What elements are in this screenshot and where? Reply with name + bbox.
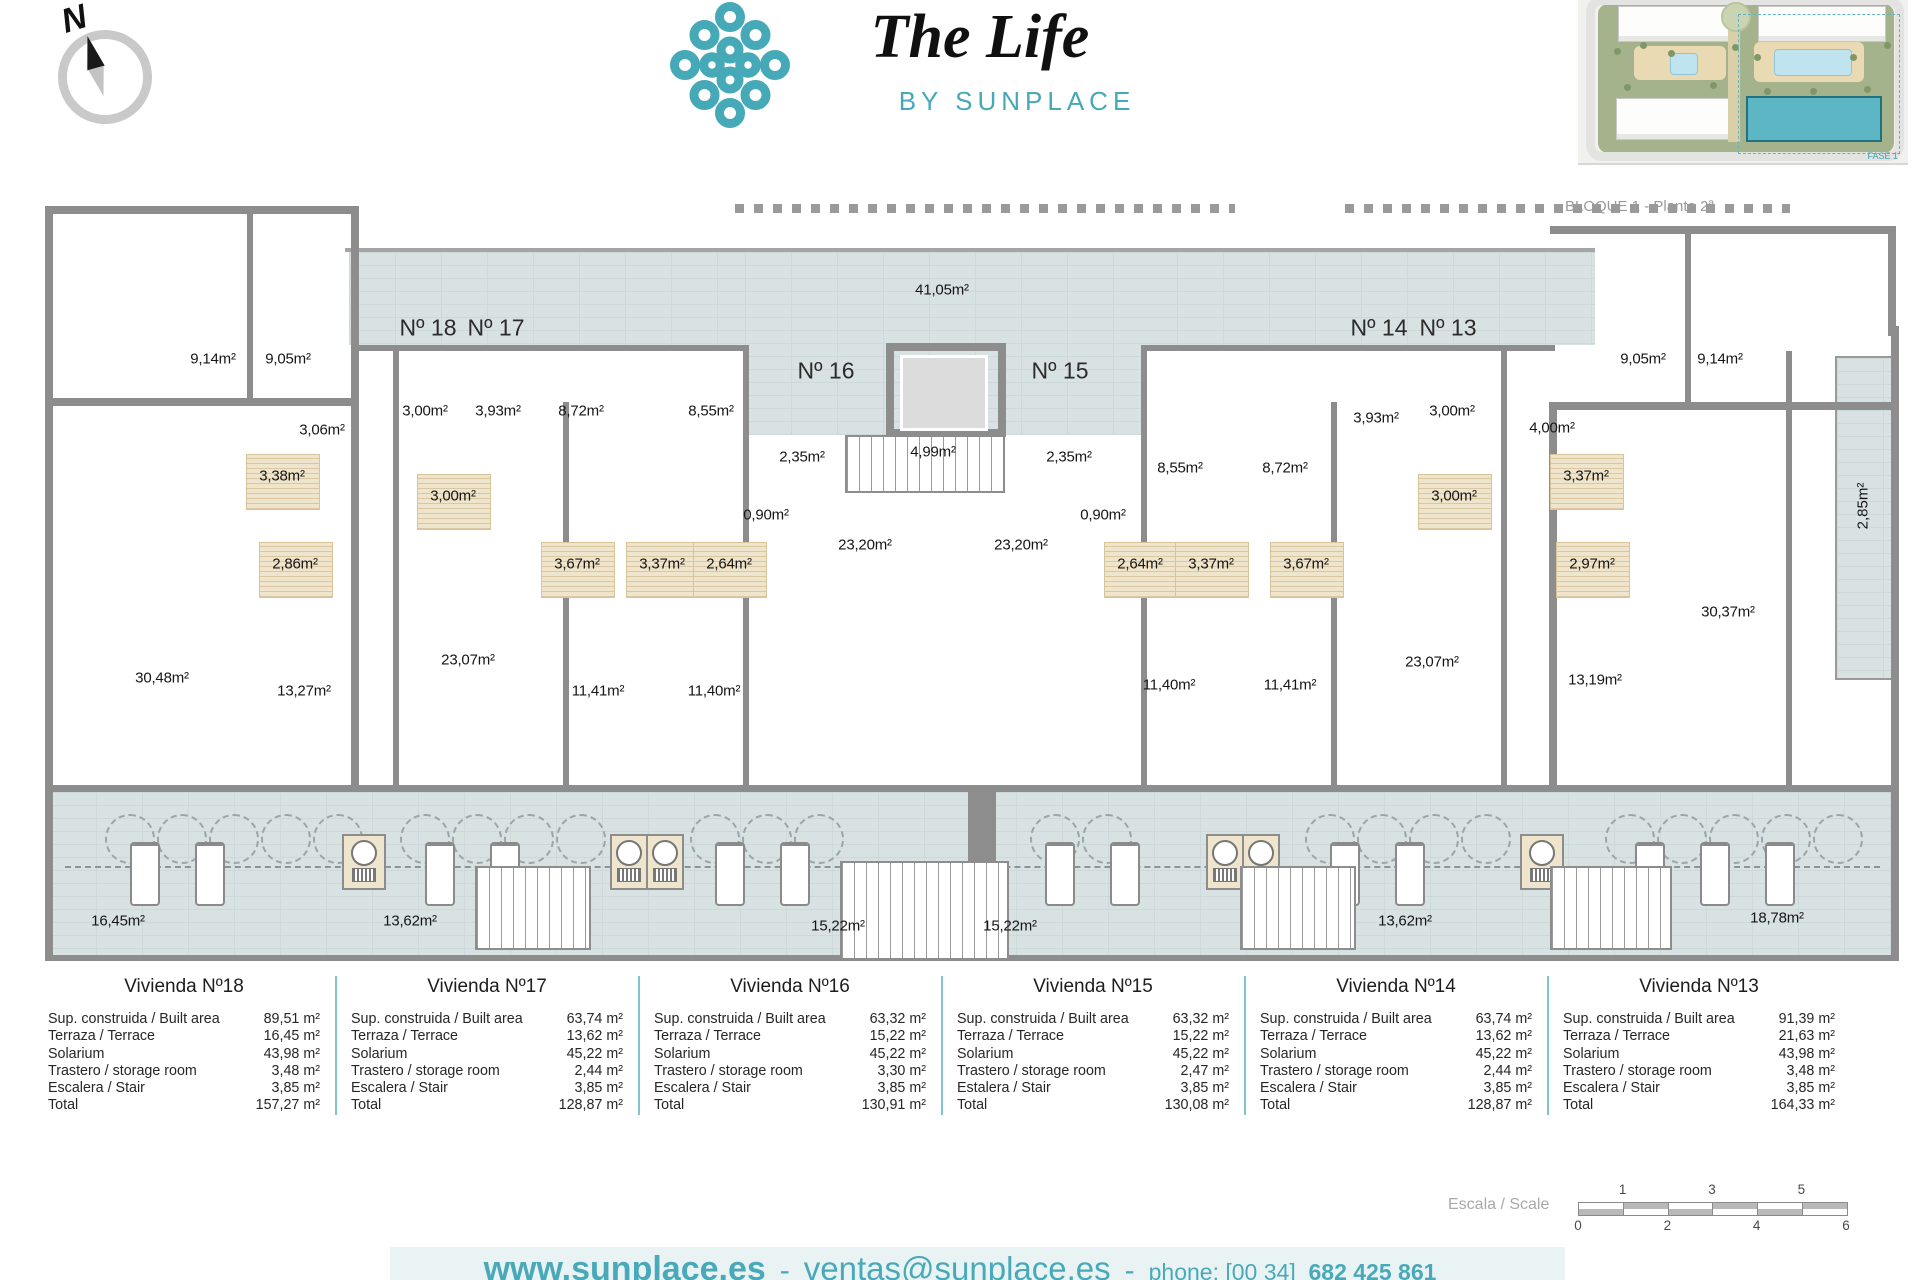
vivienda-table-title: Vivienda Nº15 <box>957 976 1229 998</box>
table-row: Sup. construida / Built area63,32 m² <box>957 1011 1229 1028</box>
table-row-value: 157,27 m² <box>256 1097 320 1114</box>
table-row: Total130,91 m² <box>654 1097 926 1114</box>
room-area-label: 11,40m² <box>688 684 741 699</box>
table-row: Total164,33 m² <box>1563 1097 1835 1114</box>
table-row-value: 3,85 m² <box>1787 1080 1835 1097</box>
table-row-label: Terraza / Terrace <box>654 1028 761 1045</box>
table-row-label: Trastero / storage room <box>1563 1063 1712 1080</box>
table-row-label: Terraza / Terrace <box>351 1028 458 1045</box>
storage-unit <box>342 834 386 890</box>
room-area-label: 9,05m² <box>1620 352 1666 367</box>
table-row: Escalera / Stair3,85 m² <box>351 1080 623 1097</box>
sun-lounger-icon <box>1700 842 1730 906</box>
vivienda-table-title: Vivienda Nº14 <box>1260 976 1532 998</box>
unit-number-label: Nº 18 <box>400 317 457 340</box>
table-row-value: 15,22 m² <box>1173 1028 1229 1045</box>
table-row-label: Escalera / Stair <box>654 1080 751 1097</box>
scale-tick: 5 <box>1798 1182 1806 1197</box>
table-row: Trastero / storage room3,48 m² <box>1563 1063 1835 1080</box>
table-row-value: 63,32 m² <box>870 1011 926 1028</box>
table-row: Trastero / storage room3,30 m² <box>654 1063 926 1080</box>
vivienda-table: Vivienda Nº16Sup. construida / Built are… <box>638 976 941 1115</box>
room-area-label: 2,35m² <box>779 450 825 465</box>
site-plan-small-pool <box>1670 53 1698 75</box>
pergola-strip <box>735 204 1235 213</box>
terrace-stairs <box>1240 866 1356 950</box>
sun-lounger-icon <box>1395 842 1425 906</box>
table-row-label: Escalera / Stair <box>48 1080 145 1097</box>
table-row-label: Sup. construida / Built area <box>1260 1011 1432 1028</box>
room-area-label: 3,67m² <box>554 557 600 572</box>
room-area-label: 23,20m² <box>838 538 892 553</box>
table-row-value: 128,87 m² <box>1468 1097 1532 1114</box>
vivienda-table: Vivienda Nº15Sup. construida / Built are… <box>941 976 1244 1115</box>
table-row: Sup. construida / Built area89,51 m² <box>48 1011 320 1028</box>
table-row-label: Solarium <box>1260 1046 1316 1063</box>
scale-tick: 1 <box>1619 1182 1627 1197</box>
room-area-label: 0,90m² <box>1080 508 1126 523</box>
footer-website-link[interactable]: www.sunplace.es <box>484 1250 766 1280</box>
room-area-label: 11,41m² <box>1264 678 1317 693</box>
table-row-value: 3,85 m² <box>272 1080 320 1097</box>
table-row-label: Sup. construida / Built area <box>654 1011 826 1028</box>
table-row-label: Terraza / Terrace <box>48 1028 155 1045</box>
table-row-value: 63,32 m² <box>1173 1011 1229 1028</box>
table-row-label: Trastero / storage room <box>48 1063 197 1080</box>
table-row: Terraza / Terrace15,22 m² <box>654 1028 926 1045</box>
table-row: Terraza / Terrace13,62 m² <box>1260 1028 1532 1045</box>
table-row-value: 16,45 m² <box>264 1028 320 1045</box>
table-row-label: Solarium <box>351 1046 407 1063</box>
vivienda-table-title: Vivienda Nº16 <box>654 976 926 998</box>
room-area-label: 4,00m² <box>1529 421 1575 436</box>
table-row: Escalera / Stair3,85 m² <box>1563 1080 1835 1097</box>
room-area-label: 0,90m² <box>743 508 789 523</box>
table-row-label: Escalera / Stair <box>1260 1080 1357 1097</box>
table-row-label: Trastero / storage room <box>351 1063 500 1080</box>
logo-subtitle: BY SUNPLACE <box>872 86 1162 117</box>
table-row-value: 2,44 m² <box>1484 1063 1532 1080</box>
table-row: Solarium43,98 m² <box>48 1046 320 1063</box>
table-row-label: Solarium <box>48 1046 104 1063</box>
table-row-label: Solarium <box>654 1046 710 1063</box>
room-area-label: 2,35m² <box>1046 450 1092 465</box>
table-row-label: Escalera / Stair <box>351 1080 448 1097</box>
logo-title: The Life <box>790 0 1170 74</box>
table-row-value: 130,91 m² <box>862 1097 926 1114</box>
room-area-label: 15,22m² <box>811 919 865 934</box>
room-area-label: 16,45m² <box>91 914 145 929</box>
umbrella-icon <box>261 814 311 864</box>
table-row-value: 3,48 m² <box>1787 1063 1835 1080</box>
room-area-label: 18,78m² <box>1750 911 1804 926</box>
room-area-label: 15,22m² <box>983 919 1037 934</box>
table-row-value: 3,48 m² <box>272 1063 320 1080</box>
table-row: Total128,87 m² <box>1260 1097 1532 1114</box>
table-row: Escalera / Stair3,85 m² <box>48 1080 320 1097</box>
room-area-label: 3,38m² <box>259 469 305 484</box>
room-area-label: 23,20m² <box>994 538 1048 553</box>
room-area-label: 9,14m² <box>190 352 236 367</box>
room-area-label: 11,41m² <box>572 684 625 699</box>
table-row-label: Total <box>1260 1097 1290 1114</box>
vivienda-table-title: Vivienda Nº17 <box>351 976 623 998</box>
footer-separator: - <box>780 1254 790 1280</box>
site-plan-building <box>1616 98 1736 140</box>
room-area-label: 3,06m² <box>299 423 345 438</box>
table-row: Terraza / Terrace15,22 m² <box>957 1028 1229 1045</box>
table-row-label: Sup. construida / Built area <box>48 1011 220 1028</box>
storage-unit <box>1206 834 1244 890</box>
sun-lounger-icon <box>1045 842 1075 906</box>
room-area-label: 41,05m² <box>915 283 969 298</box>
room-area-label: 9,14m² <box>1697 352 1743 367</box>
sun-lounger-icon <box>715 842 745 906</box>
table-row-value: 21,63 m² <box>1779 1028 1835 1045</box>
table-row-label: Estalera / Stair <box>957 1080 1051 1097</box>
table-row: Total130,08 m² <box>957 1097 1229 1114</box>
room-area-label: 3,00m² <box>1429 404 1475 419</box>
room-area-label: 3,00m² <box>402 404 448 419</box>
table-row: Solarium43,98 m² <box>1563 1046 1835 1063</box>
room-area-label: 2,97m² <box>1569 557 1615 572</box>
room-area-label: 23,07m² <box>441 653 495 668</box>
scale-tick: 0 <box>1574 1218 1582 1233</box>
scale-bar-graphic <box>1578 1202 1848 1216</box>
table-row-label: Terraza / Terrace <box>957 1028 1064 1045</box>
table-row-value: 13,62 m² <box>1476 1028 1532 1045</box>
site-plan-trees <box>1614 48 1621 55</box>
table-row-value: 130,08 m² <box>1165 1097 1229 1114</box>
unit-number-label: Nº 15 <box>1032 360 1089 383</box>
room-area-label: 8,55m² <box>1157 461 1203 476</box>
room-area-label: 3,00m² <box>430 489 476 504</box>
table-row: Sup. construida / Built area63,32 m² <box>654 1011 926 1028</box>
sun-lounger-icon <box>195 842 225 906</box>
table-row-value: 91,39 m² <box>1779 1011 1835 1028</box>
room-area-label: 8,72m² <box>1262 461 1308 476</box>
table-row-value: 13,62 m² <box>567 1028 623 1045</box>
table-row: Sup. construida / Built area63,74 m² <box>351 1011 623 1028</box>
terrace-stairs <box>1550 866 1672 950</box>
table-row: Escalera / Stair3,85 m² <box>654 1080 926 1097</box>
unit-number-label: Nº 13 <box>1420 317 1477 340</box>
room-area-label: 13,62m² <box>383 914 437 929</box>
vivienda-table: Vivienda Nº13Sup. construida / Built are… <box>1547 976 1850 1115</box>
table-row-value: 43,98 m² <box>264 1046 320 1063</box>
table-row: Sup. construida / Built area91,39 m² <box>1563 1011 1835 1028</box>
room-area-label: 8,72m² <box>558 404 604 419</box>
table-row-label: Terraza / Terrace <box>1563 1028 1670 1045</box>
table-row-label: Solarium <box>957 1046 1013 1063</box>
scale-tick: 2 <box>1664 1218 1672 1233</box>
room-area-label: 4,99m² <box>910 445 956 460</box>
table-row-label: Terraza / Terrace <box>1260 1028 1367 1045</box>
table-row-label: Sup. construida / Built area <box>1563 1011 1735 1028</box>
table-row-value: 3,85 m² <box>1484 1080 1532 1097</box>
room-area-label: 30,37m² <box>1701 605 1755 620</box>
terrace-stairs <box>475 866 591 950</box>
table-row-label: Sup. construida / Built area <box>351 1011 523 1028</box>
vivienda-table: Vivienda Nº14Sup. construida / Built are… <box>1244 976 1547 1115</box>
room-area-label: 2,86m² <box>272 557 318 572</box>
table-row-label: Total <box>48 1097 78 1114</box>
table-row-value: 3,85 m² <box>575 1080 623 1097</box>
vivienda-table: Vivienda Nº18Sup. construida / Built are… <box>48 976 335 1115</box>
table-row-value: 164,33 m² <box>1771 1097 1835 1114</box>
room-area-label: 3,00m² <box>1431 489 1477 504</box>
room-area-label: 3,37m² <box>1563 469 1609 484</box>
site-plan-thumbnail: FASE 1 <box>1578 0 1908 165</box>
table-row-label: Total <box>1563 1097 1593 1114</box>
umbrella-icon <box>1461 814 1511 864</box>
table-row: Solarium45,22 m² <box>351 1046 623 1063</box>
table-row-value: 15,22 m² <box>870 1028 926 1045</box>
table-row-value: 89,51 m² <box>264 1011 320 1028</box>
table-row: Trastero / storage room2,44 m² <box>1260 1063 1532 1080</box>
table-row-label: Total <box>957 1097 987 1114</box>
room-area-label-vertical: 2,85m² <box>1856 483 1871 530</box>
unit-number-label: Nº 17 <box>468 317 525 340</box>
footer-separator: - <box>1125 1254 1135 1280</box>
table-row: Sup. construida / Built area63,74 m² <box>1260 1011 1532 1028</box>
table-row-value: 45,22 m² <box>1476 1046 1532 1063</box>
room-area-label: 13,27m² <box>277 684 331 699</box>
table-row: Solarium45,22 m² <box>654 1046 926 1063</box>
sun-lounger-icon <box>1110 842 1140 906</box>
room-area-label: 3,37m² <box>1188 557 1234 572</box>
table-row-value: 63,74 m² <box>567 1011 623 1028</box>
table-row-value: 45,22 m² <box>567 1046 623 1063</box>
table-row: Estalera / Stair3,85 m² <box>957 1080 1229 1097</box>
table-row: Solarium45,22 m² <box>957 1046 1229 1063</box>
room-area-label: 3,67m² <box>1283 557 1329 572</box>
unit-number-label: Nº 16 <box>798 360 855 383</box>
table-row-label: Trastero / storage room <box>654 1063 803 1080</box>
table-row: Trastero / storage room2,44 m² <box>351 1063 623 1080</box>
room-area-label: 2,64m² <box>1117 557 1163 572</box>
table-row: Total157,27 m² <box>48 1097 320 1114</box>
table-row-value: 45,22 m² <box>870 1046 926 1063</box>
table-row-value: 63,74 m² <box>1476 1011 1532 1028</box>
table-row-label: Total <box>351 1097 381 1114</box>
room-area-label: 2,64m² <box>706 557 752 572</box>
table-row-label: Trastero / storage room <box>957 1063 1106 1080</box>
table-row: Trastero / storage room2,47 m² <box>957 1063 1229 1080</box>
logo-flower-icon <box>655 2 805 133</box>
table-row: Terraza / Terrace21,63 m² <box>1563 1028 1835 1045</box>
room-area-label: 13,62m² <box>1378 914 1432 929</box>
elevator-shaft <box>900 355 988 431</box>
table-row-label: Sup. construida / Built area <box>957 1011 1129 1028</box>
storage-unit <box>646 834 684 890</box>
table-row: Solarium45,22 m² <box>1260 1046 1532 1063</box>
storage-unit <box>610 834 648 890</box>
floor-plan: 41,05m²9,14m²9,05m²3,06m²3,00m²3,93m²8,7… <box>45 206 1905 964</box>
room-area-label: 3,93m² <box>1353 411 1399 426</box>
scale-bar: Escala / Scale 1350246 <box>1448 1182 1868 1242</box>
pergola-strip <box>1345 204 1790 213</box>
room-area-label: 11,40m² <box>1143 678 1196 693</box>
room-area-label: 23,07m² <box>1405 655 1459 670</box>
table-row: Terraza / Terrace16,45 m² <box>48 1028 320 1045</box>
sun-lounger-icon <box>130 842 160 906</box>
site-plan-fase-outline <box>1738 14 1900 154</box>
scale-tick: 4 <box>1753 1218 1761 1233</box>
table-row-label: Total <box>654 1097 684 1114</box>
table-row-value: 43,98 m² <box>1779 1046 1835 1063</box>
table-row: Terraza / Terrace13,62 m² <box>351 1028 623 1045</box>
table-row-label: Trastero / storage room <box>1260 1063 1409 1080</box>
scale-label: Escala / Scale <box>1448 1196 1549 1214</box>
vivienda-table-title: Vivienda Nº13 <box>1563 976 1835 998</box>
table-row-value: 3,85 m² <box>878 1080 926 1097</box>
footer: www.sunplace.es-ventas@sunplace.es-phone… <box>0 1250 1920 1280</box>
table-row: Trastero / storage room3,48 m² <box>48 1063 320 1080</box>
vivienda-tables: Vivienda Nº18Sup. construida / Built are… <box>48 976 1856 1115</box>
table-row-value: 2,44 m² <box>575 1063 623 1080</box>
vivienda-table: Vivienda Nº17Sup. construida / Built are… <box>335 976 638 1115</box>
footer-email-link[interactable]: ventas@sunplace.es <box>804 1250 1111 1280</box>
footer-phone: phone: [00 34] 682 425 861 <box>1149 1259 1437 1280</box>
room-area-label: 3,37m² <box>639 557 685 572</box>
table-row-label: Escalera / Stair <box>1563 1080 1660 1097</box>
room-area-label: 13,19m² <box>1568 673 1622 688</box>
room-area-label: 8,55m² <box>688 404 734 419</box>
terrace-stairs <box>840 861 1009 960</box>
table-row-value: 2,47 m² <box>1181 1063 1229 1080</box>
sun-lounger-icon <box>425 842 455 906</box>
table-row-value: 128,87 m² <box>559 1097 623 1114</box>
vivienda-table-title: Vivienda Nº18 <box>48 976 320 998</box>
umbrella-icon <box>1813 814 1863 864</box>
scale-tick: 6 <box>1842 1218 1850 1233</box>
table-row-label: Solarium <box>1563 1046 1619 1063</box>
unit-number-label: Nº 14 <box>1351 317 1408 340</box>
table-row-value: 3,85 m² <box>1181 1080 1229 1097</box>
room-area-label: 30,48m² <box>135 671 189 686</box>
table-row-value: 3,30 m² <box>878 1063 926 1080</box>
scale-tick: 3 <box>1708 1182 1716 1197</box>
room-area-label: 9,05m² <box>265 352 311 367</box>
table-row-value: 45,22 m² <box>1173 1046 1229 1063</box>
table-row: Escalera / Stair3,85 m² <box>1260 1080 1532 1097</box>
table-row: Total128,87 m² <box>351 1097 623 1114</box>
sun-lounger-icon <box>1765 842 1795 906</box>
sun-lounger-icon <box>780 842 810 906</box>
room-area-label: 3,93m² <box>475 404 521 419</box>
umbrella-icon <box>556 814 606 864</box>
site-plan-fase-label: FASE 1 <box>1867 151 1898 161</box>
